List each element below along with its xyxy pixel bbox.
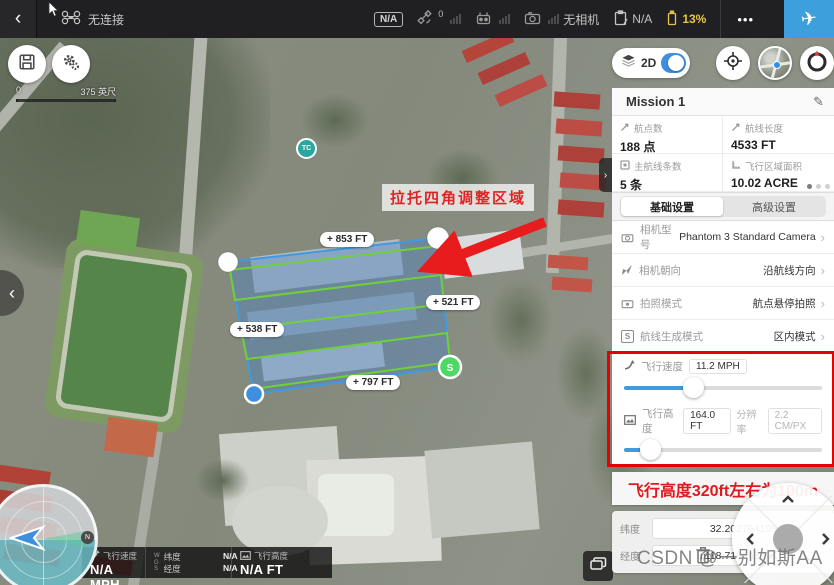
mouse-cursor: [48, 2, 60, 23]
annotation-arrow: [432, 222, 545, 266]
edge-length-right: + 521 FT: [426, 295, 480, 310]
tab-advanced-settings[interactable]: 高级设置: [723, 197, 825, 216]
altitude-value-box[interactable]: 164.0 FT: [683, 408, 730, 434]
connection-status-label: 无连接: [88, 11, 124, 28]
stat-area: 飞行区域面积 10.02 ACRE: [723, 154, 834, 192]
telemetry-altitude-label: 飞行高度: [254, 550, 288, 562]
map-mode-control: 2D: [612, 48, 690, 78]
gear-icon: [62, 53, 80, 76]
speed-slider-row: 飞行速度 11.2 MPH: [612, 353, 834, 400]
chevron-right-icon: ›: [821, 329, 825, 344]
camera-icon: [524, 11, 541, 28]
minimap-button[interactable]: [758, 46, 792, 80]
heading-icon: [621, 264, 633, 276]
altitude-slider[interactable]: [624, 438, 822, 462]
crosshair-icon: [723, 51, 743, 76]
area-ruler-icon: [731, 160, 741, 173]
row-capture-mode[interactable]: 拍照模式 航点悬停拍照 ›: [612, 287, 834, 320]
gps-count: 0: [438, 9, 443, 19]
battery-status: 13%: [666, 10, 706, 29]
camera-model-icon: [621, 232, 634, 243]
takeoff-button[interactable]: ✈: [784, 0, 834, 38]
altitude-slider-thumb[interactable]: [640, 439, 661, 460]
route-mode-icon: S: [621, 330, 634, 343]
heading-wedge: [43, 531, 85, 547]
waypoint-icon: [620, 122, 630, 135]
scale-end: 375 英尺: [80, 85, 116, 98]
telemetry-speed-label: 飞行速度: [103, 550, 137, 562]
telemetry-altitude: 飞行高度 N/A FT: [232, 547, 332, 578]
start-point-label: S: [447, 363, 454, 374]
stat-main-lines: 主航线条数 5 条: [612, 154, 723, 192]
compass-button[interactable]: [800, 46, 834, 80]
app-root: ‹ 无连接 N/A 0: [0, 0, 834, 585]
wgs-label: WGS: [154, 553, 160, 574]
save-mission-button[interactable]: [8, 45, 46, 83]
satellite-icon: [417, 10, 433, 29]
telemetry-lng-label: 经度: [164, 563, 181, 575]
layers-stack-icon: [589, 556, 607, 577]
latitude-label: 纬度: [620, 521, 652, 536]
main-lines-icon: [620, 160, 630, 173]
chevron-right-icon: ›: [821, 230, 825, 245]
panel-collapse-tab[interactable]: ›: [599, 158, 612, 192]
layers-icon: [621, 54, 636, 72]
locate-button[interactable]: [716, 46, 750, 80]
watermark: CSDN @一别如斯AA: [637, 543, 823, 570]
more-menu-button[interactable]: •••: [720, 0, 770, 38]
chevron-right-icon: ›: [821, 263, 825, 278]
speed-slider-thumb[interactable]: [683, 377, 704, 398]
resolution-label: 分辨率: [737, 406, 762, 436]
map-poi-marker: TC: [296, 138, 317, 159]
altitude-slider-row: 飞行高度 164.0 FT 分辨率 2.2 CM/PX: [612, 400, 834, 462]
minimap-position-dot: [773, 61, 781, 69]
status-mode-value: N/A: [632, 12, 652, 26]
edge-length-bottom: + 797 FT: [346, 375, 400, 390]
telemetry-speed-value: N/A MPH: [90, 562, 137, 585]
camera-status-label: 无相机: [563, 11, 599, 28]
edge-length-top: + 853 FT: [320, 232, 374, 247]
flight-mode-badge: N/A: [374, 12, 403, 27]
save-icon: [18, 53, 36, 76]
mission-title: Mission 1: [626, 94, 813, 109]
corner-handle-bottom-left[interactable]: [245, 385, 263, 403]
edit-mission-button[interactable]: ✎: [813, 94, 824, 110]
gps-signal-bars: [450, 14, 461, 24]
connection-status: 无连接: [61, 10, 124, 28]
tab-basic-settings[interactable]: 基础设置: [621, 197, 723, 216]
telemetry-coords: WGS 纬度 N/A 经度 N/A: [146, 547, 232, 578]
battery-icon: [666, 10, 678, 29]
map-scale-bar: 0 375 英尺: [16, 85, 116, 102]
speed-slider[interactable]: [624, 376, 822, 400]
telemetry-altitude-value: N/A FT: [240, 562, 324, 577]
battery-percent: 13%: [682, 12, 706, 26]
compass-icon: [805, 49, 829, 78]
altitude-icon: [240, 551, 251, 562]
plane-icon: ✈: [800, 7, 819, 32]
row-route-mode[interactable]: S 航线生成模式 区内模式 ›: [612, 320, 834, 353]
stat-route-length: 航线长度 4533 FT: [723, 116, 834, 154]
aircraft-arrow-icon: [9, 523, 49, 553]
panel-page-dots: [807, 184, 830, 189]
media-library-button[interactable]: [583, 551, 613, 581]
edge-length-left: + 538 FT: [230, 322, 284, 337]
rc-signal-bars: [499, 14, 510, 24]
clipboard-icon: [613, 10, 628, 29]
map-2d-toggle[interactable]: [661, 53, 686, 73]
remote-controller-icon: [475, 10, 492, 28]
north-marker: N: [81, 531, 94, 544]
settings-rows: 相机型号 Phantom 3 Standard Camera › 相机朝向 沿航…: [612, 221, 834, 353]
flight-speed-icon: [624, 360, 635, 374]
chevron-right-icon: ›: [821, 296, 825, 311]
row-camera-model[interactable]: 相机型号 Phantom 3 Standard Camera ›: [612, 221, 834, 254]
mission-stats: 航点数 188 点 航线长度 4533 FT 主航线条数 5 条: [612, 116, 834, 193]
gps-status: 0: [417, 10, 461, 29]
remote-controller-status: [475, 10, 510, 28]
tutorial-annotation: 拉托四角调整区域: [382, 184, 534, 211]
status-mode: N/A: [613, 10, 652, 29]
telemetry-bar: 飞行速度 N/A MPH WGS 纬度 N/A 经度 N/A: [82, 547, 332, 578]
settings-tabs: 基础设置 高级设置: [612, 193, 834, 221]
route-length-icon: [731, 122, 741, 135]
drone-icon: [61, 10, 81, 28]
back-button[interactable]: ‹: [0, 0, 37, 38]
resolution-value-box: 2.2 CM/PX: [768, 408, 822, 434]
camera-status: 无相机: [524, 11, 599, 28]
row-camera-heading[interactable]: 相机朝向 沿航线方向 ›: [612, 254, 834, 287]
flight-altitude-icon: [624, 415, 636, 428]
mission-header: Mission 1 ✎: [612, 88, 834, 116]
flight-parameters: 飞行速度 11.2 MPH 飞行高度 164.0 FT 分辨率 2.2 CM/P…: [612, 353, 834, 466]
corner-handle-top-left[interactable]: [218, 252, 238, 272]
top-status-bar: ‹ 无连接 N/A 0: [0, 0, 834, 38]
camera-signal-bars: [548, 14, 559, 24]
nudge-up-button[interactable]: [779, 491, 797, 509]
settings-button[interactable]: [52, 45, 90, 83]
view-2d-label: 2D: [641, 56, 656, 70]
scale-start: 0: [16, 85, 21, 98]
capture-mode-icon: [621, 298, 634, 309]
stat-waypoints: 航点数 188 点: [612, 116, 723, 154]
corner-handle-top-right[interactable]: [427, 227, 449, 249]
speed-value-box[interactable]: 11.2 MPH: [689, 359, 747, 374]
telemetry-lat-label: 纬度: [164, 551, 181, 563]
